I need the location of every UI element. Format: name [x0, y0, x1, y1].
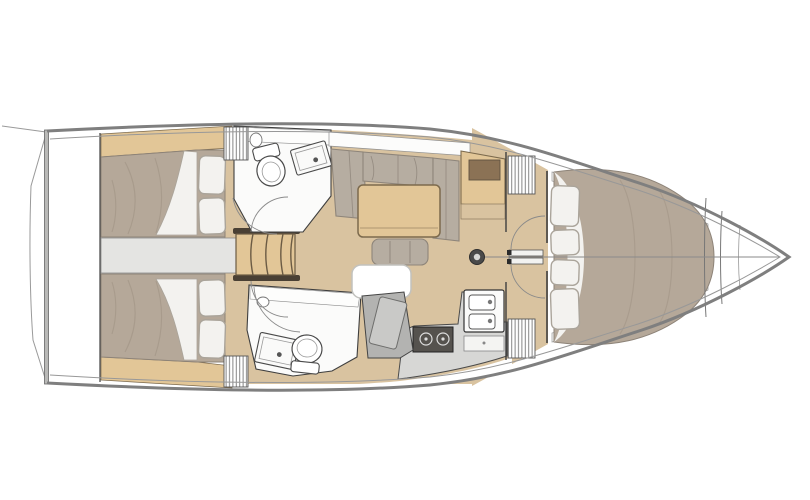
pillow: [198, 320, 225, 359]
cabinet-panel: [469, 160, 500, 180]
head-starboard: [247, 285, 361, 376]
nav-station: [362, 292, 413, 358]
door-hinge: [507, 250, 512, 255]
aft-cabin-port: [101, 126, 232, 237]
door-leaf: [509, 258, 543, 264]
aft-cabin-starboard: [101, 274, 232, 388]
louver-locker-fwd-port: [508, 156, 535, 194]
burner-center: [441, 337, 444, 340]
two-burner-stove: [413, 327, 453, 352]
transom-bar: [45, 130, 49, 384]
steps-bottom-rail: [233, 275, 300, 281]
door-hinge: [507, 259, 512, 264]
pillow: [550, 186, 579, 227]
swim-platform-outline: [30, 134, 46, 381]
floorplan-svg: [0, 0, 810, 500]
cabinet-base: [461, 204, 505, 219]
yacht-floorplan: [0, 0, 810, 500]
pillow: [198, 280, 225, 317]
pillow: [198, 156, 225, 195]
pillow: [551, 230, 580, 256]
stern-rail-line: [2, 126, 46, 132]
burner-center: [424, 337, 427, 340]
pillow: [551, 260, 580, 286]
engine-corridor: [101, 238, 236, 273]
faucet: [488, 319, 492, 323]
louver-locker-fwd-starboard: [508, 319, 535, 358]
faucet: [488, 300, 492, 304]
pillow: [550, 289, 579, 330]
salon-table: [358, 185, 440, 237]
drawer-knob: [483, 342, 486, 345]
door-leaf: [509, 250, 543, 256]
pillow: [198, 198, 225, 235]
sink: [250, 133, 262, 147]
mast-core: [474, 254, 480, 260]
ottoman: [372, 239, 428, 265]
